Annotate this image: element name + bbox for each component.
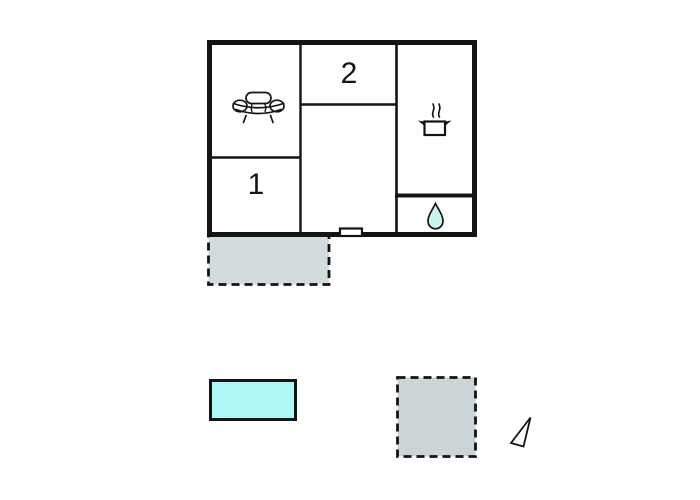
terrace-dashed-area [209, 235, 330, 285]
north-arrow-icon [511, 418, 531, 447]
pool-area [211, 381, 296, 420]
room-1-label: 1 [248, 168, 265, 201]
room-2-label: 2 [341, 57, 358, 90]
entrance-door [340, 229, 362, 237]
floor-plan-drawing: 2 1 [0, 0, 700, 500]
annex-dashed-area [398, 378, 476, 457]
floor-plan-canvas: 2 1 [0, 0, 700, 500]
